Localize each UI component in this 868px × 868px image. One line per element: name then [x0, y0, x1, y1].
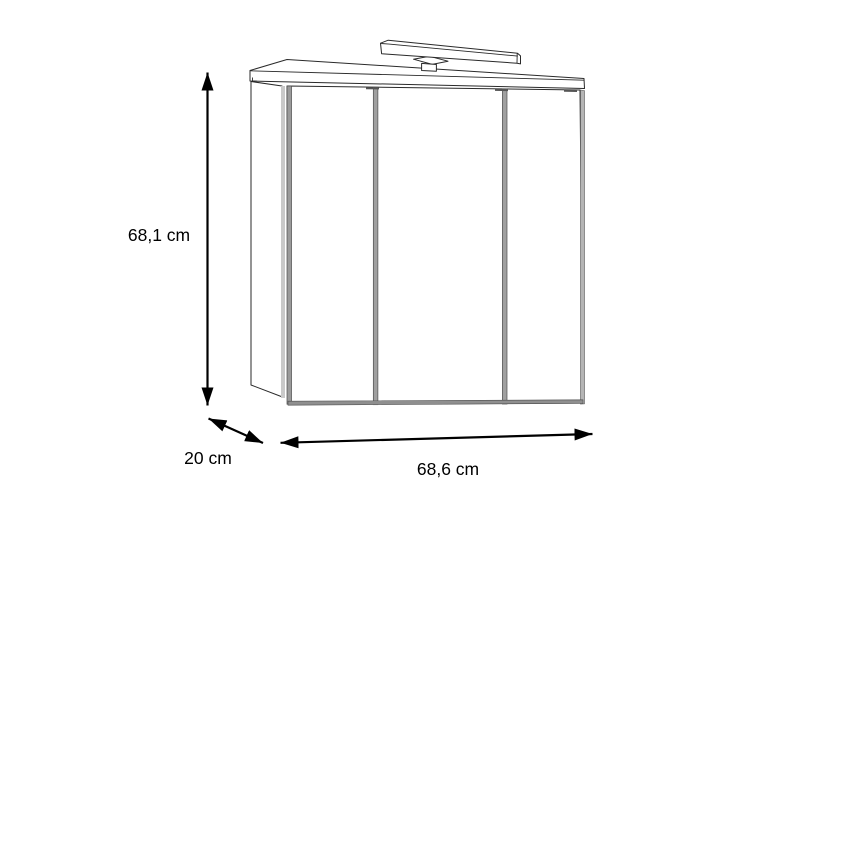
cabinet-dimension-drawing: 68,1 cm 20 cm 68,6 cm: [0, 0, 868, 868]
light-bar: [381, 40, 521, 64]
door-front-face: [287, 86, 583, 404]
door-hinge-strip: [287, 86, 292, 404]
light-stem: [422, 63, 437, 71]
height-dimension: 68,1 cm: [128, 73, 208, 406]
door-separator-right: [502, 89, 507, 404]
depth-arrow: [209, 419, 264, 444]
top-panel-outline: [250, 60, 585, 89]
top-panel: [250, 60, 585, 89]
width-dimension: 68,6 cm: [281, 434, 593, 479]
height-dimension-label: 68,1 cm: [128, 225, 190, 245]
cabinet-right-edge-strip: [581, 90, 585, 404]
left-carcass-edge-strip: [281, 86, 285, 398]
width-dimension-label: 68,6 cm: [417, 459, 479, 479]
drawing-canvas: 68,1 cm 20 cm 68,6 cm: [0, 0, 868, 868]
width-arrow: [281, 434, 593, 443]
depth-dimension-label: 20 cm: [184, 448, 232, 468]
door-separator-left: [373, 87, 378, 405]
depth-dimension: 20 cm: [184, 419, 263, 469]
light-bar-left-cap-line: [381, 44, 389, 45]
left-side-panel: [251, 82, 285, 399]
left-side-panel-face: [251, 82, 283, 398]
mirror-doors: [287, 86, 585, 405]
